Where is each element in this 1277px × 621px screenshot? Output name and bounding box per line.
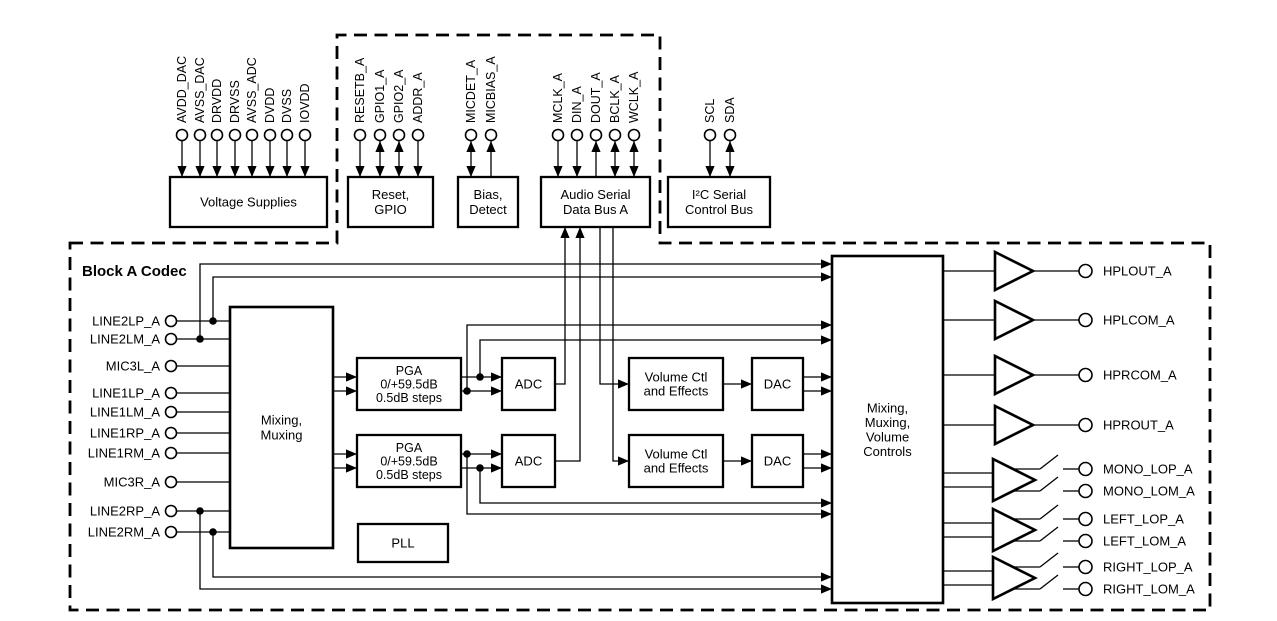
- output-pad-LEFT_LOM_A: [1079, 535, 1092, 548]
- arrowhead: [821, 449, 832, 458]
- switch-icon: [1040, 455, 1058, 469]
- arrowhead: [618, 379, 629, 388]
- output-label-RIGHT_LOM_A: RIGHT_LOM_A: [1103, 582, 1195, 597]
- pin-label-GPIO1_A: GPIO1_A: [373, 69, 387, 123]
- input-pad-MIC3R_A: [166, 477, 177, 488]
- input-label-MIC3R_A: MIC3R_A: [104, 475, 161, 490]
- adc-right-label: ADC: [515, 454, 542, 469]
- input-pad-LINE2LP_A: [166, 316, 177, 327]
- arrowhead: [591, 141, 600, 152]
- audio-serial-bus-label: Data Bus A: [563, 202, 628, 217]
- pin-pad-AVDD_DAC: [177, 130, 188, 141]
- arrowhead: [346, 386, 357, 395]
- output-pad-MONO_LOP_A: [1079, 463, 1092, 476]
- pin-pad-DVSS: [282, 130, 293, 141]
- arrowhead: [300, 166, 309, 177]
- wire-adc1-to-bus: [555, 227, 565, 384]
- input-pad-MIC3L_A: [166, 361, 177, 372]
- arrowhead: [821, 259, 832, 268]
- input-label-MIC3L_A: MIC3L_A: [106, 359, 161, 374]
- wire-adc2-to-bus: [555, 227, 580, 461]
- arrowhead: [375, 166, 384, 177]
- amp-triangle: [995, 301, 1033, 339]
- amp-triangle: [993, 509, 1035, 551]
- pga-left-label: PGA: [396, 364, 423, 378]
- input-label-LINE1LM_A: LINE1LM_A: [90, 405, 160, 420]
- pin-pad-AVSS_DAC: [195, 130, 206, 141]
- arrowhead: [618, 456, 629, 465]
- input-label-LINE2RP_A: LINE2RP_A: [90, 504, 160, 519]
- arrowhead: [575, 227, 584, 238]
- pin-pad-MICDET_A: [466, 130, 477, 141]
- volume-ctl-left-label: and Effects: [644, 384, 709, 399]
- arrowhead: [346, 449, 357, 458]
- output-label-HPRCOM_A: HPRCOM_A: [1103, 368, 1177, 383]
- switch-icon: [1040, 575, 1058, 589]
- arrowhead: [212, 166, 221, 177]
- pga-left-label: 0/+59.5dB: [380, 378, 437, 392]
- pin-label-GPIO2_A: GPIO2_A: [392, 69, 406, 123]
- arrowhead: [821, 320, 832, 329]
- pin-label-DRVDD: DRVDD: [210, 79, 224, 123]
- arrowhead: [821, 509, 832, 518]
- input-pad-LINE1RM_A: [166, 448, 177, 459]
- input-label-LINE1RM_A: LINE1RM_A: [88, 446, 161, 461]
- arrowhead: [553, 166, 562, 177]
- reset-gpio-label: GPIO: [374, 202, 407, 217]
- output-pad-LEFT_LOP_A: [1079, 513, 1092, 526]
- pga-right-label: PGA: [396, 441, 423, 455]
- codec-title: Block A Codec: [82, 263, 187, 280]
- pin-label-DVSS: DVSS: [280, 89, 294, 123]
- arrowhead: [466, 141, 475, 152]
- volume-ctl-left-label: Volume Ctl: [645, 370, 708, 385]
- arrowhead: [491, 372, 502, 381]
- arrowhead: [394, 166, 403, 177]
- pin-label-DRVSS: DRVSS: [228, 80, 242, 123]
- pin-pad-DRVDD: [212, 130, 223, 141]
- pin-label-DOUT_A: DOUT_A: [589, 72, 603, 123]
- pll-label: PLL: [391, 536, 414, 551]
- pin-label-ADDR_A: ADDR_A: [411, 72, 425, 123]
- output-label-HPROUT_A: HPROUT_A: [1103, 418, 1174, 433]
- arrowhead: [413, 166, 422, 177]
- pin-pad-DIN_A: [572, 130, 583, 141]
- audio-serial-bus-label: Audio Serial: [560, 187, 630, 202]
- arrowhead: [629, 166, 638, 177]
- volume-ctl-right-label: and Effects: [644, 461, 709, 476]
- volume-ctl-right-label: Volume Ctl: [645, 447, 708, 462]
- pin-pad-RESETB_A: [355, 130, 366, 141]
- wire-bus-to-vol2: [613, 227, 629, 461]
- pga-left-label: 0.5dB steps: [376, 391, 442, 405]
- pin-pad-IOVDD: [300, 130, 311, 141]
- arrowhead: [491, 386, 502, 395]
- output-label-LEFT_LOP_A: LEFT_LOP_A: [1103, 512, 1184, 527]
- input-label-LINE1LP_A: LINE1LP_A: [92, 386, 160, 401]
- input-label-LINE2RM_A: LINE2RM_A: [88, 525, 161, 540]
- arrowhead: [247, 166, 256, 177]
- pin-label-RESETB_A: RESETB_A: [353, 57, 367, 123]
- input-label-LINE1RP_A: LINE1RP_A: [90, 426, 160, 441]
- pin-label-AVDD_DAC: AVDD_DAC: [175, 56, 189, 123]
- arrowhead: [265, 166, 274, 177]
- arrowhead: [346, 463, 357, 472]
- arrowhead: [282, 166, 291, 177]
- amp-triangle: [993, 557, 1035, 599]
- arrowhead: [725, 166, 734, 177]
- arrowhead: [195, 166, 204, 177]
- pin-pad-MICBIAS_A: [486, 130, 497, 141]
- output-pad-HPROUT_A: [1079, 419, 1092, 432]
- input-pad-LINE1RP_A: [166, 428, 177, 439]
- output-mixer-label: Muxing,: [865, 415, 911, 430]
- pin-label-MCLK_A: MCLK_A: [551, 72, 565, 123]
- arrowhead: [821, 584, 832, 593]
- pin-label-MICBIAS_A: MICBIAS_A: [484, 56, 498, 123]
- pin-pad-GPIO1_A: [375, 130, 386, 141]
- bias-detect-label: Bias,: [474, 187, 503, 202]
- output-pad-RIGHT_LOM_A: [1079, 583, 1092, 596]
- output-label-HPLCOM_A: HPLCOM_A: [1103, 313, 1175, 328]
- input-pad-LINE2LM_A: [166, 334, 177, 345]
- output-label-RIGHT_LOP_A: RIGHT_LOP_A: [1103, 560, 1193, 575]
- arrowhead: [346, 372, 357, 381]
- adc-left-label: ADC: [515, 377, 542, 392]
- pin-label-BCLK_A: BCLK_A: [608, 74, 622, 123]
- pin-label-WCLK_A: WCLK_A: [627, 71, 641, 123]
- arrowhead: [177, 166, 186, 177]
- arrowhead: [610, 141, 619, 152]
- switch-icon: [1040, 505, 1058, 519]
- pga-right-label: 0.5dB steps: [376, 468, 442, 482]
- arrowhead: [629, 141, 638, 152]
- input-pad-LINE1LP_A: [166, 388, 177, 399]
- pin-label-SDA: SDA: [723, 97, 737, 123]
- pin-label-AVSS_DAC: AVSS_DAC: [193, 57, 207, 123]
- pin-pad-DVDD: [265, 130, 276, 141]
- pin-pad-WCLK_A: [629, 130, 640, 141]
- arrowhead: [491, 449, 502, 458]
- pin-label-DVDD: DVDD: [263, 88, 277, 123]
- output-pad-MONO_LOM_A: [1079, 485, 1092, 498]
- output-pad-HPLCOM_A: [1079, 314, 1092, 327]
- i2c-bus-label: Control Bus: [685, 202, 753, 217]
- output-pad-HPLOUT_A: [1079, 265, 1092, 278]
- i2c-bus-label: I²C Serial: [692, 187, 746, 202]
- switch-icon: [1040, 527, 1058, 541]
- arrowhead: [821, 463, 832, 472]
- pin-label-DIN_A: DIN_A: [570, 86, 584, 123]
- codec-block-diagram-page: Block A CodecAVDD_DACAVSS_DACDRVDDDRVSSA…: [0, 0, 1277, 621]
- amp-triangle: [995, 356, 1033, 394]
- input-pad-LINE2RM_A: [166, 527, 177, 538]
- pin-label-IOVDD: IOVDD: [298, 83, 312, 123]
- input-pad-LINE1LM_A: [166, 407, 177, 418]
- dac-left-label: DAC: [764, 377, 791, 392]
- arrowhead: [486, 141, 495, 152]
- pga-right-label: 0/+59.5dB: [380, 455, 437, 469]
- voltage-supplies-label: Voltage Supplies: [200, 195, 297, 210]
- output-mixer-label: Mixing,: [867, 400, 908, 415]
- arrowhead: [725, 141, 734, 152]
- pin-label-AVSS_ADC: AVSS_ADC: [245, 57, 259, 123]
- output-mixer-label: Volume: [866, 429, 909, 444]
- amp-triangle: [993, 459, 1035, 501]
- pin-pad-DRVSS: [230, 130, 241, 141]
- input-label-LINE2LP_A: LINE2LP_A: [92, 314, 160, 329]
- arrowhead: [821, 498, 832, 507]
- arrowhead: [560, 227, 569, 238]
- reset-gpio-label: Reset,: [372, 187, 410, 202]
- arrowhead: [821, 335, 832, 344]
- codec-block-diagram: Block A CodecAVDD_DACAVSS_DACDRVDDDRVSSA…: [0, 0, 1277, 621]
- arrowhead: [741, 379, 752, 388]
- pin-pad-BCLK_A: [610, 130, 621, 141]
- pin-pad-DOUT_A: [591, 130, 602, 141]
- arrowhead: [466, 166, 475, 177]
- mixing-muxing-label: Muxing: [261, 428, 303, 443]
- arrowhead: [375, 141, 384, 152]
- pin-label-MICDET_A: MICDET_A: [464, 59, 478, 123]
- arrowhead: [821, 272, 832, 281]
- arrowhead: [230, 166, 239, 177]
- pin-pad-ADDR_A: [413, 130, 424, 141]
- output-mixer-label: Controls: [863, 444, 912, 459]
- pin-pad-MCLK_A: [553, 130, 564, 141]
- output-label-MONO_LOP_A: MONO_LOP_A: [1103, 462, 1193, 477]
- amp-triangle: [995, 252, 1033, 290]
- input-pad-LINE2RP_A: [166, 506, 177, 517]
- switch-icon: [1040, 553, 1058, 567]
- pin-pad-SDA: [725, 130, 736, 141]
- output-label-MONO_LOM_A: MONO_LOM_A: [1103, 484, 1195, 499]
- arrowhead: [821, 372, 832, 381]
- pin-pad-GPIO2_A: [394, 130, 405, 141]
- switch-icon: [1040, 477, 1058, 491]
- wire-bus-to-vol1: [600, 227, 629, 384]
- arrowhead: [741, 456, 752, 465]
- arrowhead: [394, 141, 403, 152]
- output-pad-RIGHT_LOP_A: [1079, 561, 1092, 574]
- output-label-LEFT_LOM_A: LEFT_LOM_A: [1103, 534, 1186, 549]
- pin-label-SCL: SCL: [703, 99, 717, 123]
- output-label-HPLOUT_A: HPLOUT_A: [1103, 264, 1172, 279]
- arrowhead: [610, 166, 619, 177]
- arrowhead: [572, 166, 581, 177]
- bias-detect-label: Detect: [469, 202, 507, 217]
- arrowhead: [821, 572, 832, 581]
- amp-triangle: [995, 406, 1033, 444]
- output-pad-HPRCOM_A: [1079, 369, 1092, 382]
- input-label-LINE2LM_A: LINE2LM_A: [90, 332, 160, 347]
- arrowhead: [355, 166, 364, 177]
- dac-right-label: DAC: [764, 454, 791, 469]
- pin-pad-AVSS_ADC: [247, 130, 258, 141]
- arrowhead: [705, 166, 714, 177]
- pin-pad-SCL: [705, 130, 716, 141]
- mixing-muxing-label: Mixing,: [261, 413, 302, 428]
- arrowhead: [491, 463, 502, 472]
- arrowhead: [821, 386, 832, 395]
